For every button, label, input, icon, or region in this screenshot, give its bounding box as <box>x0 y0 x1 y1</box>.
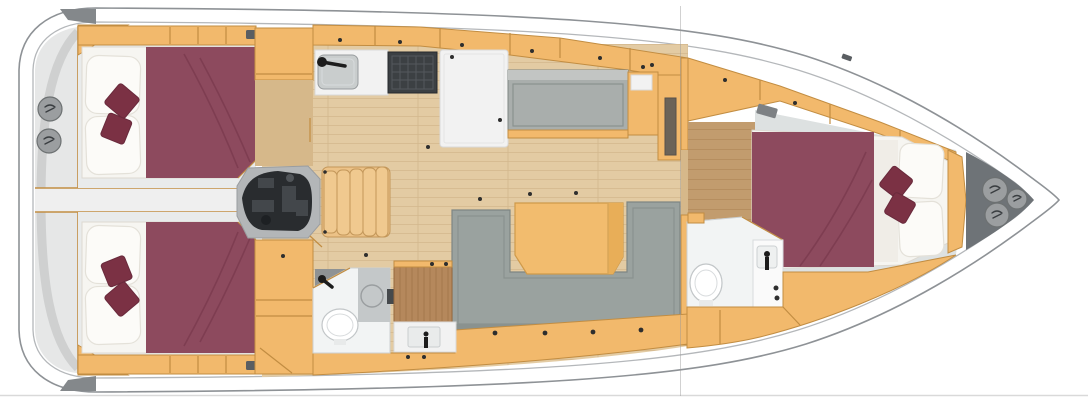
door-track <box>394 261 452 267</box>
shower-floor <box>358 268 390 322</box>
hull-vent <box>841 53 852 61</box>
floor-plan-canvas <box>0 0 1088 400</box>
faucet-icon <box>424 337 428 348</box>
deck-hatch-icon <box>37 129 61 153</box>
faucet-head-icon <box>764 251 770 257</box>
toilet-base <box>334 339 346 345</box>
door-hinge <box>387 289 394 304</box>
stair-tread <box>376 167 388 237</box>
settee-plinth <box>508 130 628 138</box>
overhead-lockers <box>78 355 256 374</box>
overhead-lockers <box>78 26 256 45</box>
faucet-head-icon <box>317 57 327 67</box>
stair-tread <box>363 168 376 236</box>
cabin-floor <box>688 122 755 224</box>
understair-cabinet <box>255 240 313 374</box>
yacht-floor-plan <box>0 0 1088 400</box>
galley-peninsula-counter <box>440 50 508 147</box>
locker-door <box>665 98 676 155</box>
faucet-head-icon <box>424 332 429 337</box>
stair-tread <box>337 170 350 235</box>
bulkhead-upper <box>681 58 688 150</box>
faucet-icon <box>765 257 769 270</box>
cabin-doorway <box>681 150 688 215</box>
cabin-entry-floor <box>255 80 313 166</box>
bed-cover <box>146 47 256 178</box>
wardrobe-port <box>255 28 313 80</box>
companionway-stairs <box>322 167 390 237</box>
engine-bay <box>237 166 322 247</box>
stair-tread <box>324 171 337 233</box>
stair-tread <box>350 169 363 235</box>
aft-head <box>313 261 456 353</box>
deck-hatch-icon <box>38 97 62 121</box>
bed-cover <box>146 222 256 353</box>
aft-cabin-port <box>78 25 257 188</box>
stern-walkway <box>35 188 237 212</box>
wet-room-panel <box>394 266 452 322</box>
cabinet-tray <box>631 75 652 90</box>
deck-hatch-icon <box>985 203 1009 227</box>
toilet-base <box>699 300 713 306</box>
deck-hatch-icon <box>983 178 1008 203</box>
salon-table <box>515 203 623 274</box>
aft-cabin-starboard <box>78 212 257 375</box>
settee-backrest <box>508 70 628 80</box>
small-locker <box>688 213 704 223</box>
